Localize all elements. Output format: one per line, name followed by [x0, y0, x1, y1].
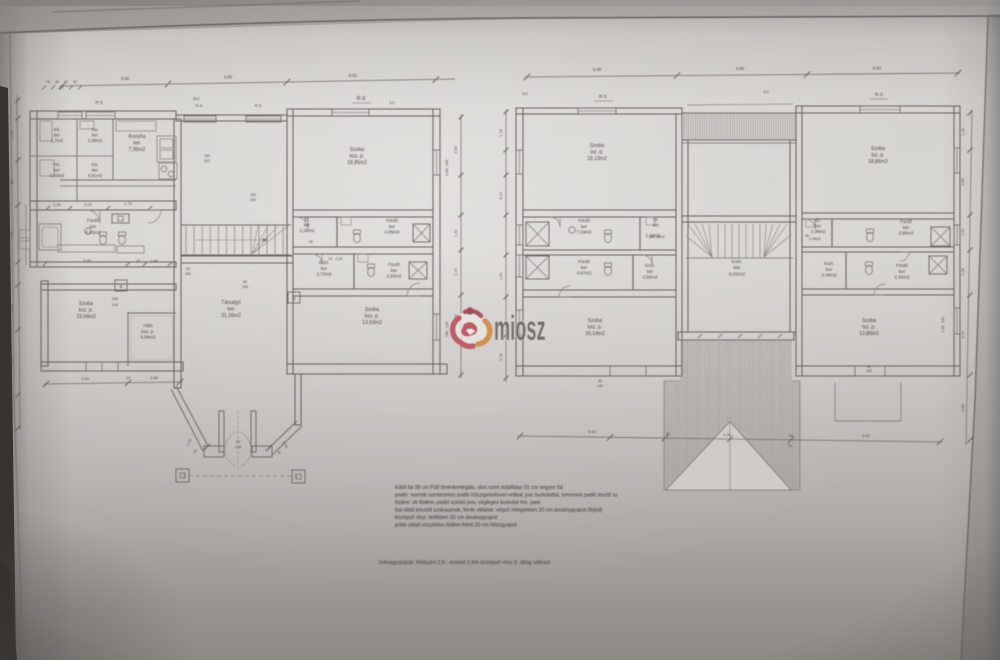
- svg-text:8,9: 8,9: [390, 101, 395, 105]
- svg-text:30: 30: [788, 444, 792, 448]
- svg-text:1,7m2: 1,7m2: [51, 138, 64, 143]
- svg-text:ksz. p.: ksz. p.: [588, 325, 602, 331]
- svg-text:ker: ker: [90, 224, 97, 229]
- svg-text:1,16: 1,16: [499, 129, 503, 136]
- svg-text:3.50: 3.50: [121, 76, 130, 81]
- svg-text:ker: ker: [903, 225, 910, 230]
- svg-text:Közl.: Közl.: [732, 259, 743, 265]
- svg-text:2,63m2: 2,63m2: [50, 173, 65, 178]
- svg-text:60: 60: [10, 180, 14, 184]
- svg-text:Fürdő: Fürdő: [578, 259, 590, 264]
- svg-text:Szoba: Szoba: [350, 147, 364, 153]
- svg-text:73: 73: [328, 257, 332, 261]
- svg-text:ker: ker: [734, 265, 741, 271]
- svg-text:240: 240: [242, 285, 248, 289]
- svg-text:5.52: 5.52: [349, 73, 358, 78]
- svg-text:lsz. p.: lsz. p.: [590, 150, 603, 156]
- svg-text:2,56m2: 2,56m2: [642, 275, 658, 280]
- svg-text:2,28m2: 2,28m2: [809, 237, 821, 241]
- svg-text:ker: ker: [54, 168, 61, 173]
- svg-text:ksz. p.: ksz. p.: [141, 329, 154, 334]
- svg-text:2,60: 2,60: [454, 146, 458, 153]
- svg-text:Szoba: Szoba: [588, 318, 602, 324]
- svg-text:padló: normál szerkezetes padl: padló: normál szerkezetes padló hősziget…: [395, 493, 618, 499]
- svg-text:7,34m2: 7,34m2: [576, 230, 592, 235]
- svg-text:ker: ker: [321, 266, 328, 271]
- svg-text:2,18m2: 2,18m2: [653, 235, 665, 239]
- svg-text:2.66: 2.66: [150, 375, 159, 380]
- svg-text:Közl.: Közl.: [824, 261, 834, 266]
- svg-text:4.90: 4.90: [736, 66, 745, 71]
- svg-text:6,03m2: 6,03m2: [85, 230, 101, 235]
- svg-text:1,51: 1,51: [961, 228, 965, 235]
- svg-text:10: 10: [126, 376, 130, 380]
- svg-text:4,91m2: 4,91m2: [88, 173, 103, 178]
- svg-text:90: 90: [236, 440, 240, 444]
- svg-text:1,16: 1,16: [961, 128, 965, 135]
- svg-text:30: 30: [73, 80, 77, 84]
- svg-text:1,51: 1,51: [454, 229, 458, 236]
- svg-text:Ká.: Ká.: [92, 162, 99, 167]
- svg-text:ker: ker: [826, 267, 833, 272]
- svg-text:5.40: 5.40: [588, 429, 597, 434]
- svg-text:Fürdő: Fürdő: [578, 218, 590, 223]
- svg-text:bal oldal készült szakasznak,: bal oldal készült szakasznak, ferde olda…: [395, 508, 603, 514]
- svg-text:R S: R S: [196, 103, 203, 108]
- svg-text:Szoba: Szoba: [365, 307, 379, 313]
- svg-text:2,28m2: 2,28m2: [300, 228, 315, 233]
- svg-text:födém: vb födém, padló szintió: födém: vb födém, padló szintió pva, végl…: [395, 500, 541, 506]
- svg-text:4,35: 4,35: [10, 231, 14, 238]
- svg-text:4.30: 4.30: [723, 432, 732, 437]
- svg-text:5.40: 5.40: [593, 67, 602, 72]
- svg-text:R S: R S: [255, 103, 262, 108]
- svg-text:300: 300: [112, 297, 118, 301]
- svg-text:1,73: 1,73: [124, 201, 132, 206]
- svg-text:1,51: 1,51: [10, 304, 14, 311]
- svg-text:19,04m2: 19,04m2: [76, 314, 96, 320]
- svg-text:Háló: Háló: [143, 323, 153, 328]
- svg-text:Szoba: Szoba: [590, 143, 604, 149]
- svg-text:18,85m2: 18,85m2: [868, 159, 888, 165]
- svg-text:140: 140: [866, 369, 872, 373]
- svg-text:Szoba: Szoba: [79, 301, 93, 307]
- svg-text:1,50: 1,50: [941, 326, 945, 333]
- svg-text:1.40: 1.40: [150, 258, 158, 263]
- svg-text:3,14: 3,14: [961, 331, 965, 338]
- svg-text:5.52: 5.52: [873, 66, 882, 71]
- svg-text:Ét.: Ét.: [304, 217, 309, 222]
- svg-text:R-S: R-S: [599, 94, 607, 99]
- svg-text:2,60: 2,60: [961, 178, 965, 185]
- svg-text:Közl.: Közl.: [645, 263, 655, 268]
- svg-text:ker: ker: [391, 268, 398, 273]
- svg-text:Ét.: Ét.: [653, 217, 658, 222]
- svg-text:210: 210: [112, 303, 118, 307]
- svg-text:pöbb oldalt vízszintes födém f: pöbb oldalt vízszintes födém felett 20 c…: [395, 523, 517, 529]
- svg-text:R-S: R-S: [875, 92, 883, 97]
- svg-text:5,98m2: 5,98m2: [140, 335, 156, 340]
- svg-text:90: 90: [186, 267, 190, 271]
- svg-text:2,10: 2,10: [336, 257, 343, 261]
- svg-text:2,16: 2,16: [499, 353, 503, 360]
- svg-text:1,16: 1,16: [10, 131, 14, 138]
- svg-text:ker: ker: [647, 269, 654, 274]
- svg-text:3,98m2: 3,98m2: [898, 231, 914, 236]
- svg-text:R-S: R-S: [357, 96, 366, 102]
- svg-text:ksz. p.: ksz. p.: [79, 308, 93, 314]
- svg-text:31,16m2: 31,16m2: [221, 313, 241, 319]
- svg-text:1,98m2: 1,98m2: [88, 138, 103, 143]
- svg-text:Konyha: Konyha: [129, 134, 146, 140]
- svg-text:1,40: 1,40: [235, 445, 242, 449]
- svg-text:Pin.: Pin.: [53, 162, 61, 167]
- svg-text:ker: ker: [92, 168, 99, 173]
- svg-text:140: 140: [597, 384, 603, 388]
- svg-text:ker: ker: [581, 265, 588, 270]
- svg-text:120: 120: [941, 317, 945, 323]
- svg-text:16,14m2: 16,14m2: [585, 331, 605, 337]
- svg-text:70: 70: [46, 80, 50, 84]
- svg-text:13,63m2: 13,63m2: [362, 320, 382, 326]
- svg-text:ksz. p.: ksz. p.: [350, 154, 364, 160]
- svg-text:ker: ker: [815, 224, 822, 229]
- svg-text:ker: ker: [389, 224, 396, 229]
- svg-text:40: 40: [10, 410, 14, 414]
- svg-text:8,2: 8,2: [764, 90, 769, 94]
- svg-text:1,16: 1,16: [961, 268, 965, 275]
- svg-text:7,95m2: 7,95m2: [129, 147, 146, 153]
- svg-text:B: B: [293, 296, 296, 301]
- svg-text:lsz. p.: lsz. p.: [862, 325, 875, 331]
- svg-text:Fürdő: Fürdő: [896, 263, 908, 268]
- svg-text:190: 190: [250, 193, 256, 197]
- svg-text:középső rész: tetőkben 20 cm á: középső rész: tetőkben 20 cm ásványgyapo…: [395, 515, 498, 521]
- svg-text:2,86: 2,86: [10, 358, 14, 365]
- svg-text:30: 30: [789, 433, 794, 438]
- svg-text:ksz. p.: ksz. p.: [365, 314, 379, 320]
- svg-text:220: 220: [250, 198, 256, 202]
- svg-text:2,43: 2,43: [84, 202, 92, 207]
- svg-text:3.90: 3.90: [83, 258, 91, 263]
- svg-text:2,34m2: 2,34m2: [894, 275, 910, 280]
- svg-text:90: 90: [243, 280, 247, 284]
- svg-text:B: B: [120, 284, 123, 289]
- svg-text:2,60: 2,60: [445, 168, 449, 175]
- svg-text:13,80m2: 13,80m2: [859, 331, 879, 337]
- svg-text:ker: ker: [304, 223, 311, 228]
- svg-text:3.50: 3.50: [81, 376, 90, 381]
- svg-text:Fürdő: Fürdő: [386, 218, 398, 223]
- svg-text:1,51: 1,51: [499, 272, 503, 279]
- svg-text:4.50: 4.50: [224, 75, 233, 80]
- svg-text:Szoba: Szoba: [862, 318, 876, 324]
- svg-text:köbő fal 38 cm P30 tíméskertég: köbő fal 38 cm P30 tíméskertéglás, alsó …: [395, 485, 563, 491]
- svg-text:220: 220: [204, 159, 210, 163]
- svg-text:30: 30: [55, 80, 59, 84]
- svg-text:2,86: 2,86: [961, 404, 965, 411]
- svg-text:lsz. p.: lsz. p.: [871, 153, 884, 159]
- svg-text:ker: ker: [54, 133, 61, 138]
- svg-text:Ét.: Ét.: [815, 218, 820, 223]
- svg-text:19,13m2: 19,13m2: [587, 156, 607, 162]
- svg-text:2,00: 2,00: [53, 202, 61, 207]
- svg-text:30: 30: [666, 431, 671, 436]
- svg-text:ker: ker: [653, 223, 660, 228]
- svg-text:90: 90: [64, 80, 68, 84]
- svg-text:Fürdő: Fürdő: [900, 219, 912, 224]
- svg-text:240: 240: [185, 272, 191, 276]
- svg-text:1,14: 1,14: [454, 268, 458, 275]
- svg-text:Ká.: Ká.: [54, 127, 61, 132]
- svg-text:Szoba: Szoba: [871, 146, 885, 152]
- svg-text:Ka.: Ka.: [92, 127, 99, 132]
- svg-text:6,02m2: 6,02m2: [729, 271, 745, 277]
- svg-text:ker: ker: [899, 269, 906, 274]
- svg-text:Fürdő: Fürdő: [87, 218, 99, 223]
- svg-text:Jelmagyarázat: földszint 2,6 ;: Jelmagyarázat: földszint 2,6 ; emelet 2,…: [378, 560, 550, 566]
- svg-text:ker: ker: [134, 141, 141, 147]
- svg-text:ker: ker: [581, 224, 588, 229]
- svg-text:R S: R S: [95, 100, 102, 105]
- svg-text:2,38m2: 2,38m2: [811, 229, 826, 234]
- svg-text:120: 120: [445, 160, 449, 166]
- svg-text:190: 190: [204, 154, 210, 158]
- svg-text:ker: ker: [92, 133, 99, 138]
- svg-text:Fürdő: Fürdő: [388, 262, 400, 267]
- svg-text:4,05m2: 4,05m2: [384, 230, 400, 235]
- svg-text:8,5: 8,5: [523, 92, 528, 96]
- svg-text:90: 90: [309, 240, 313, 244]
- svg-text:2,46m2: 2,46m2: [821, 273, 837, 278]
- svg-text:3,14: 3,14: [499, 192, 503, 199]
- svg-text:26,0: 26,0: [193, 97, 200, 101]
- svg-text:150: 150: [445, 331, 449, 337]
- svg-text:18,85m2: 18,85m2: [347, 160, 367, 166]
- svg-text:Társalgó: Társalgó: [221, 300, 241, 306]
- svg-text:2,72m2: 2,72m2: [316, 272, 332, 277]
- svg-text:2,93m2: 2,93m2: [386, 274, 402, 279]
- svg-text:4,67m2: 4,67m2: [576, 271, 592, 276]
- svg-text:miosz: miosz: [494, 309, 546, 348]
- svg-text:10: 10: [136, 259, 140, 263]
- svg-text:ker: ker: [228, 307, 235, 313]
- svg-text:40: 40: [598, 379, 602, 383]
- svg-text:120: 120: [445, 322, 449, 328]
- svg-text:5.42: 5.42: [862, 433, 871, 438]
